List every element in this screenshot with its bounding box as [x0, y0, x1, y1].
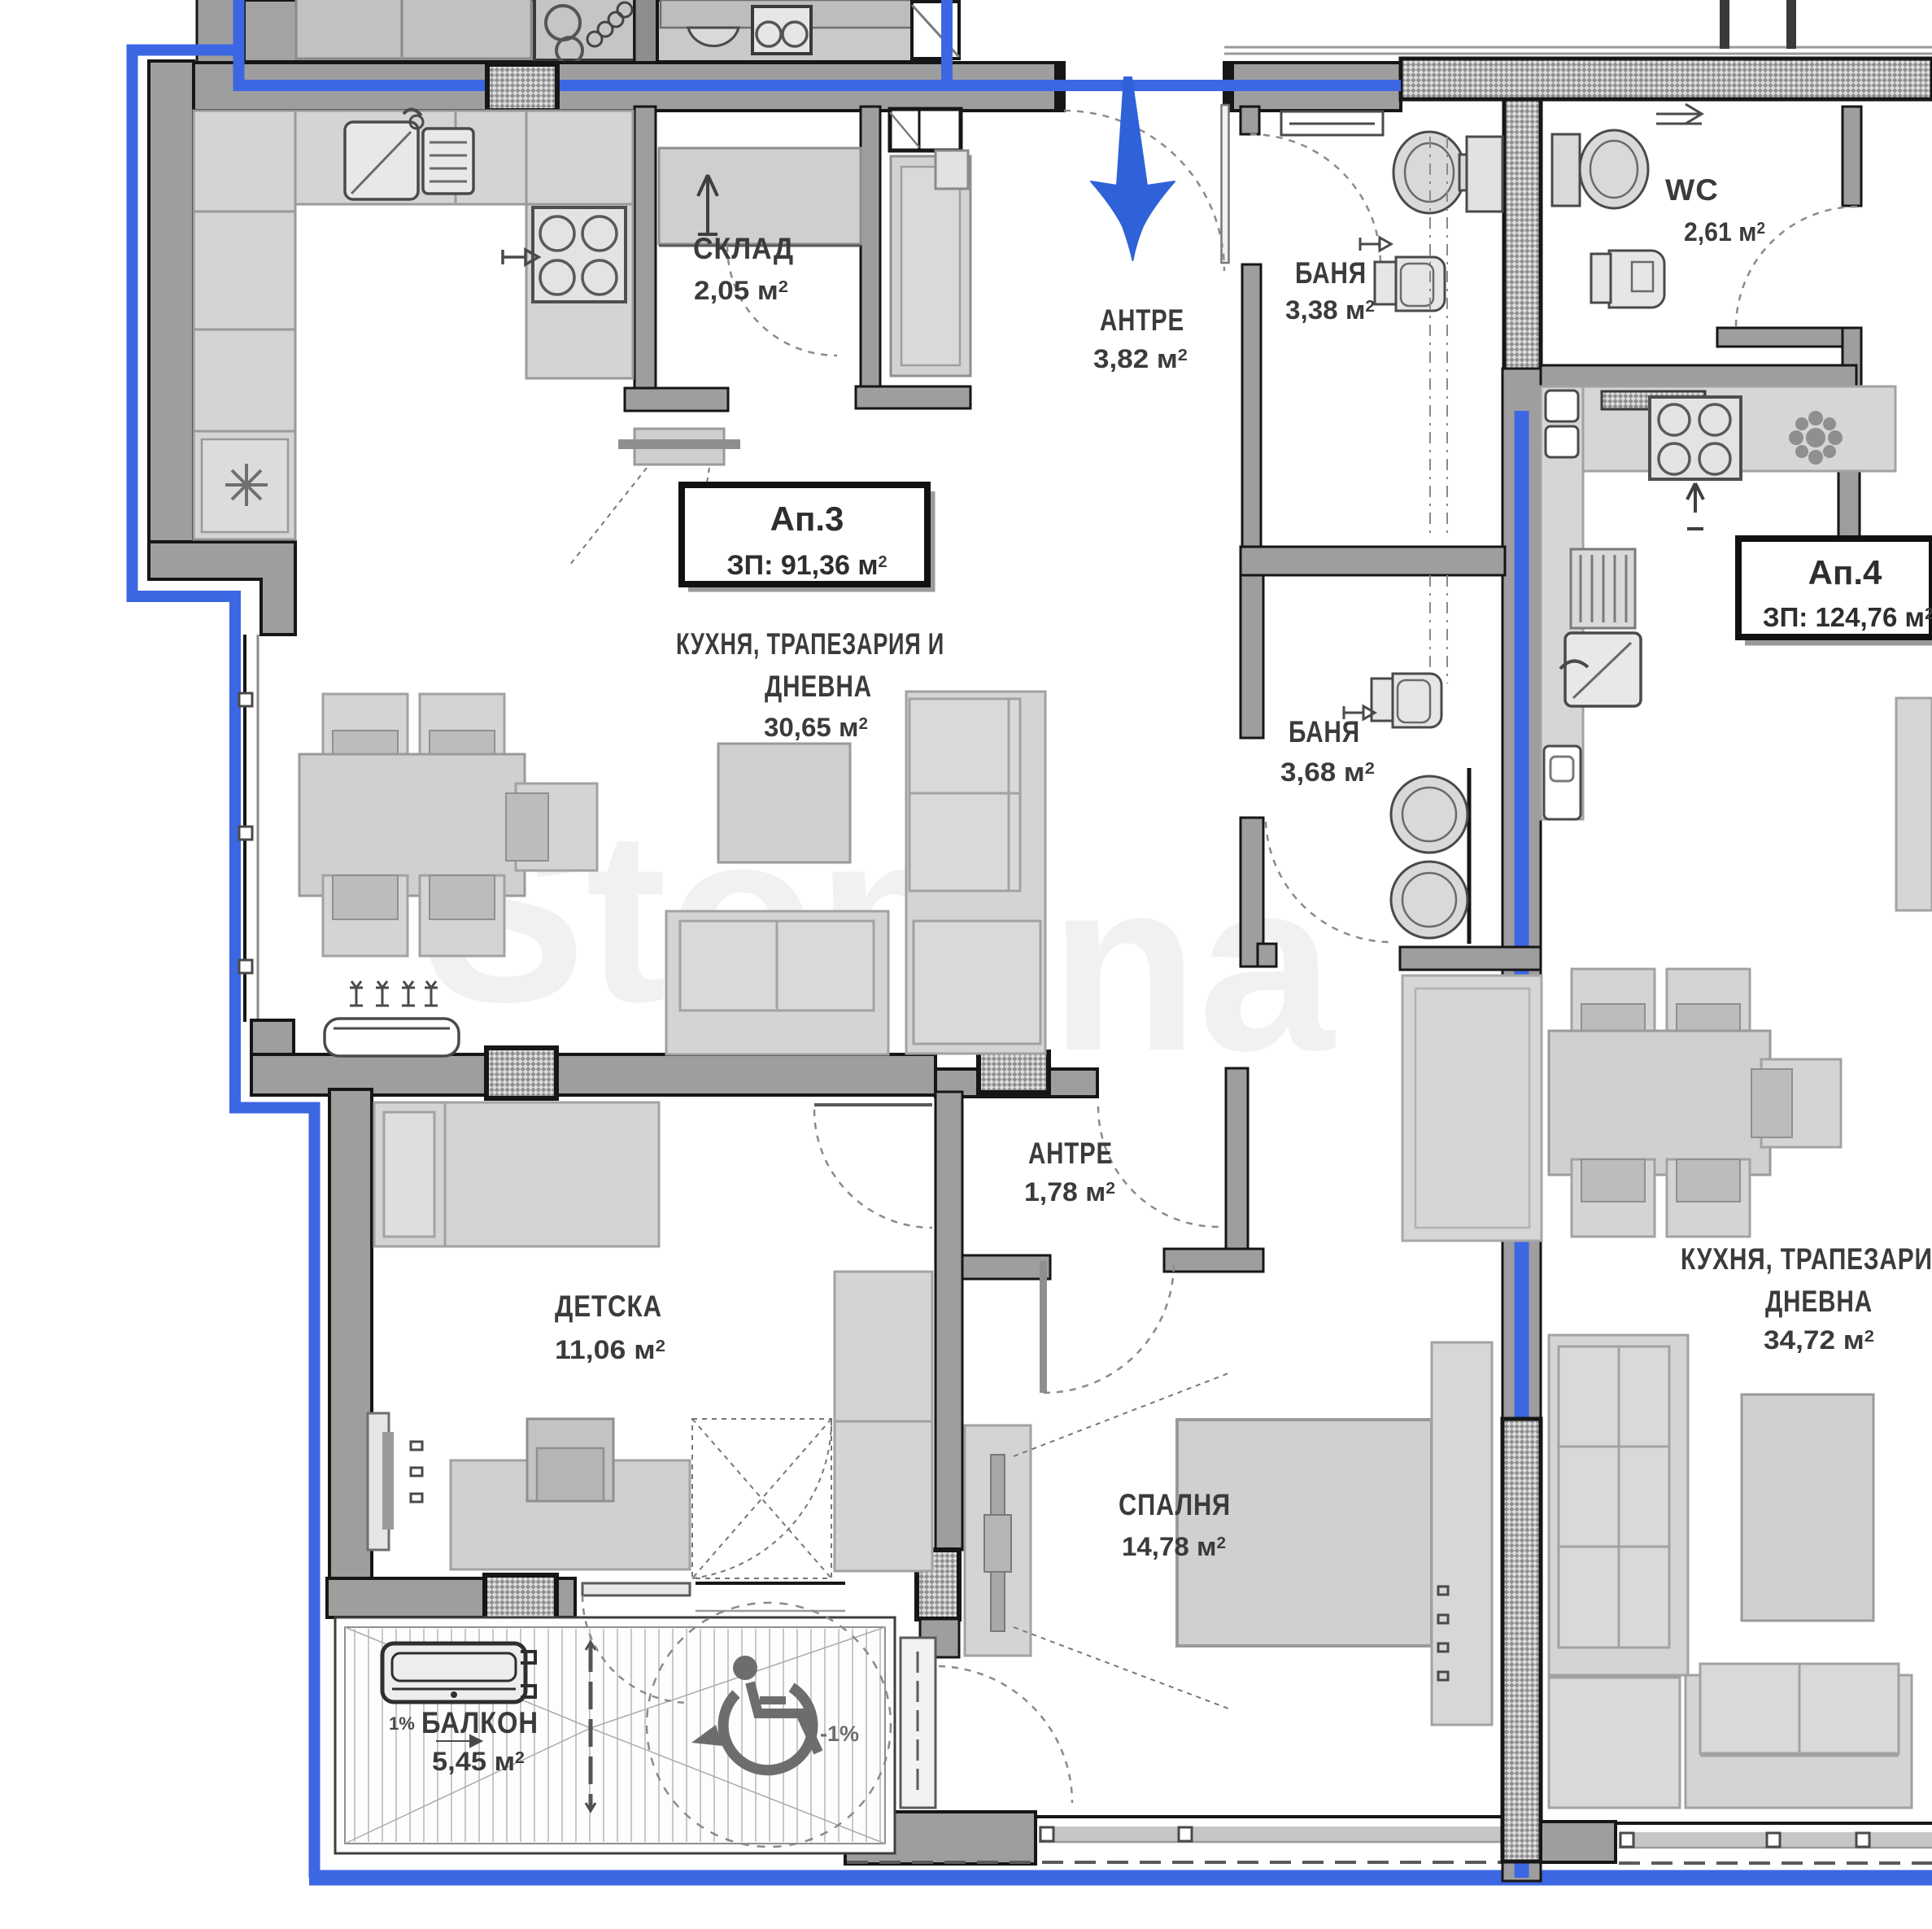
svg-text:БАНЯ: БАНЯ: [1295, 256, 1367, 290]
svg-text:ДНЕВНА: ДНЕВНА: [765, 670, 872, 703]
svg-text:14,78 м2: 14,78 м2: [1122, 1532, 1226, 1561]
svg-text:5,45 м2: 5,45 м2: [432, 1747, 525, 1776]
svg-text:WC: WC: [1665, 173, 1719, 207]
svg-text:ДЕТСКА: ДЕТСКА: [555, 1290, 662, 1323]
svg-text:1%: 1%: [389, 1713, 415, 1734]
svg-text:Ап.3: Ап.3: [770, 500, 844, 538]
svg-text:na: na: [1049, 828, 1336, 1102]
svg-text:2,61 м2: 2,61 м2: [1684, 217, 1765, 247]
svg-text:30,65 м2: 30,65 м2: [764, 713, 868, 742]
svg-text:ДНЕВНА: ДНЕВНА: [1765, 1285, 1873, 1318]
svg-text:СПАЛНЯ: СПАЛНЯ: [1119, 1488, 1231, 1521]
svg-text:БАЛКОН: БАЛКОН: [421, 1706, 539, 1739]
svg-text:АНТРЕ: АНТРЕ: [1028, 1137, 1113, 1170]
svg-text:СКЛАД: СКЛАД: [693, 232, 794, 265]
svg-text:2,05 м2: 2,05 м2: [694, 276, 788, 305]
svg-text:1,78 м2: 1,78 м2: [1024, 1177, 1115, 1207]
svg-text:ЗП: 91,36 м2: ЗП: 91,36 м2: [726, 550, 887, 581]
svg-text:11,06 м2: 11,06 м2: [555, 1335, 665, 1364]
svg-text:БАНЯ: БАНЯ: [1289, 715, 1360, 748]
svg-text:3,68 м2: 3,68 м2: [1280, 757, 1375, 787]
svg-text:-1%: -1%: [820, 1722, 859, 1746]
svg-text:34,72 м2: 34,72 м2: [1764, 1325, 1874, 1355]
svg-text:3,82 м2: 3,82 м2: [1093, 344, 1188, 373]
svg-text:ЗП: 124,76 м2: ЗП: 124,76 м2: [1763, 602, 1932, 632]
svg-text:КУХНЯ, ТРАПЕЗАРИЯ И: КУХНЯ, ТРАПЕЗАРИЯ И: [676, 627, 944, 661]
svg-text:АНТРЕ: АНТРЕ: [1100, 303, 1184, 337]
svg-text:КУХНЯ, ТРАПЕЗАРИЯ: КУХНЯ, ТРАПЕЗАРИЯ: [1681, 1242, 1932, 1276]
svg-text:3,38 м2: 3,38 м2: [1285, 295, 1375, 325]
svg-text:Ап.4: Ап.4: [1808, 553, 1882, 591]
